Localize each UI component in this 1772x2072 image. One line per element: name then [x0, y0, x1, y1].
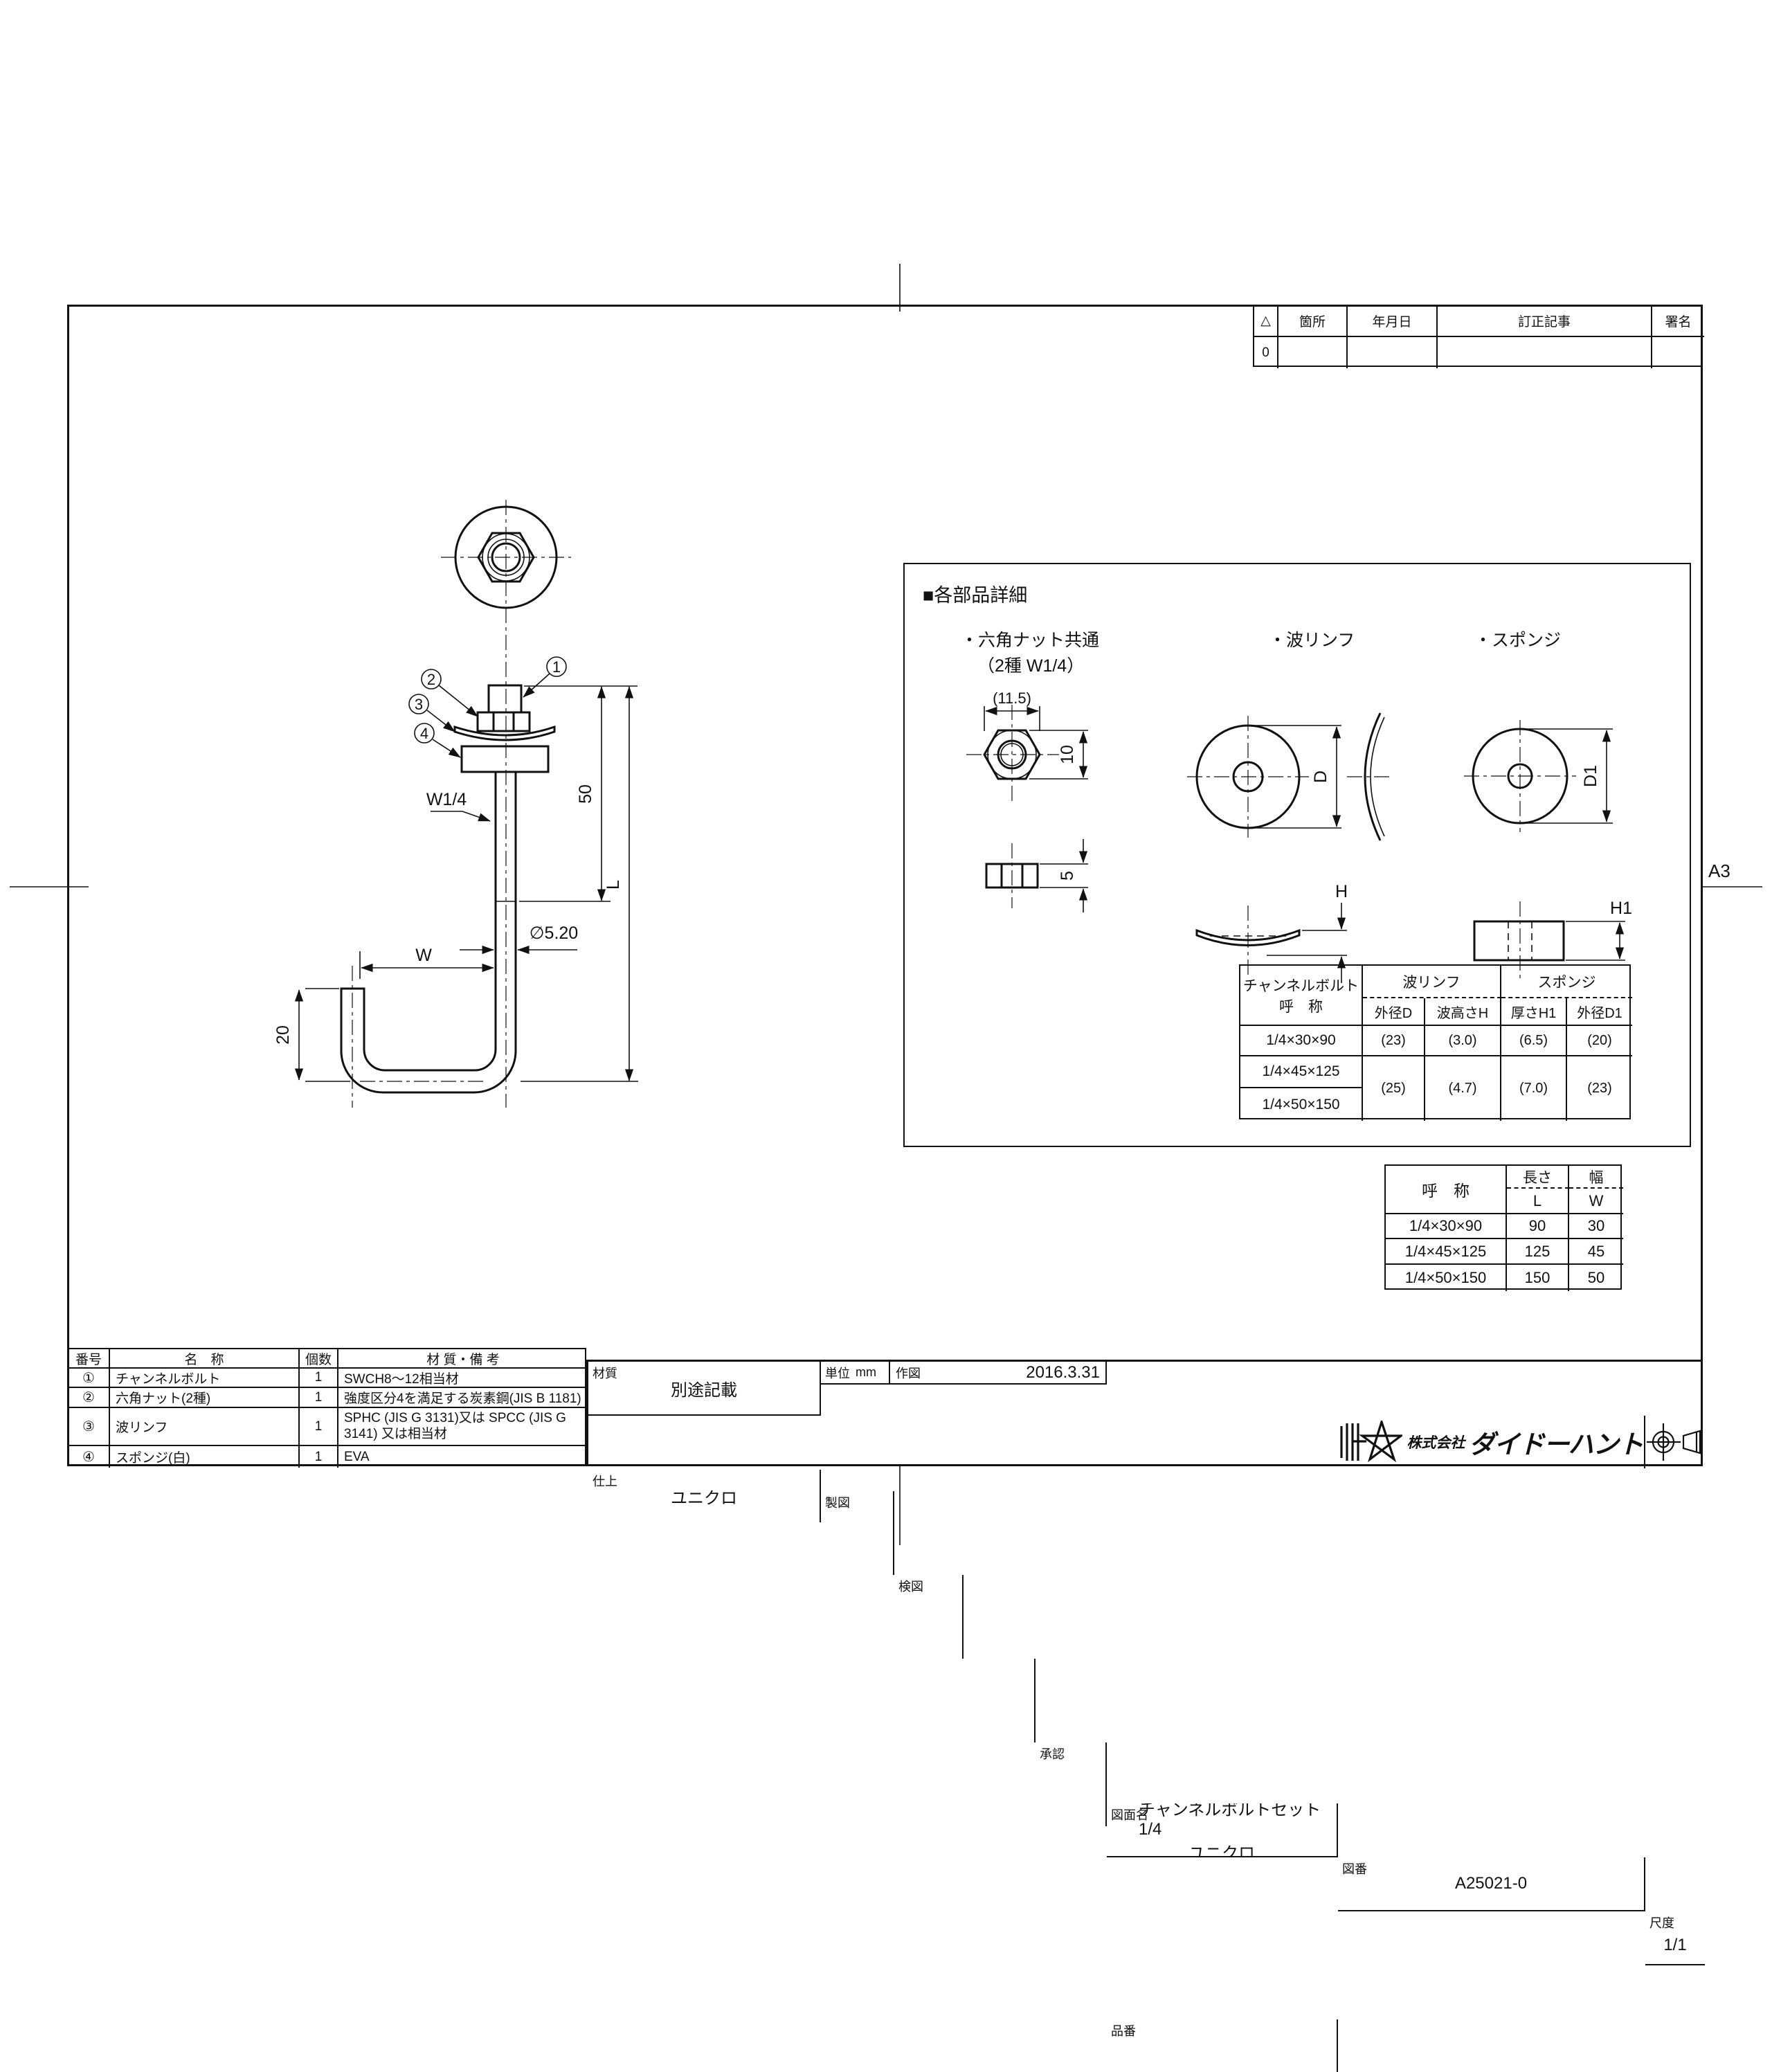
titleblock-unit-cell: 単位 mm [821, 1362, 890, 1385]
drawing-name-label: 図面名 [1111, 1805, 1148, 1823]
revision-row-sign [1652, 337, 1704, 368]
detail-panel-title: ■各部品詳細 [923, 580, 1027, 607]
revision-col-mark: △ [1254, 306, 1278, 337]
size-row3-l: 150 [1507, 1265, 1569, 1291]
spec-row3-name: 1/4×50×150 [1240, 1088, 1363, 1121]
spec-row1-name: 1/4×30×90 [1240, 1026, 1363, 1056]
parts-row3-name: 波リンフ [110, 1408, 300, 1446]
size-row1-name: 1/4×30×90 [1386, 1214, 1507, 1239]
parts-header-material: 材 質・備 考 [338, 1349, 588, 1369]
titleblock-scale-cell: 尺度 1/1 [1645, 1911, 1705, 1965]
spec-name-header-line1: チャンネルボルト [1243, 975, 1359, 996]
size-row3-w: 50 [1569, 1265, 1623, 1291]
drawing-name-line1: チャンネルボルトセット 1/4 [1139, 1803, 1337, 1839]
material-value: 別途記載 [671, 1376, 737, 1400]
spec-group-washer: 波リンフ [1363, 966, 1501, 998]
drawn-label: 作図 [896, 1364, 921, 1382]
parts-row4-material: EVA [338, 1446, 588, 1468]
size-table: 呼 称 長さ 幅 L W 1/4×30×90 90 30 1/4×45×125 … [1384, 1164, 1622, 1290]
parts-header-qty: 個数 [300, 1349, 338, 1369]
size-row2-name: 1/4×45×125 [1386, 1239, 1507, 1265]
revision-table: △ 箇所 年月日 訂正記事 署名 0 [1253, 305, 1703, 367]
parts-row1-name: チャンネルボルト [110, 1369, 300, 1388]
titleblock-number-cell: 図番 A25021-0 [1338, 1857, 1645, 1911]
spec-merged-h1: (7.0) [1501, 1056, 1567, 1121]
size-row3-name: 1/4×50×150 [1386, 1265, 1507, 1291]
spec-sub-h1: 厚さH1 [1501, 998, 1567, 1026]
parts-row1-material: SWCH8～12相当材 [338, 1369, 588, 1388]
titleblock-draft-cell: 製図 [821, 1491, 894, 1575]
revision-row-date [1348, 337, 1438, 368]
size-row1-w: 30 [1569, 1214, 1623, 1239]
spec-merged-d1: (23) [1567, 1056, 1632, 1121]
titleblock-check-cell: 検図 [894, 1575, 964, 1659]
parts-row2-no: ② [69, 1388, 110, 1408]
parts-row3-no: ③ [69, 1408, 110, 1446]
size-len-header: 長さ [1507, 1166, 1569, 1189]
revision-row-note [1438, 337, 1652, 368]
detail-nut-label: ・六角ナット共通 [961, 627, 1099, 651]
approve-label: 承認 [1040, 1745, 1065, 1763]
size-len-sub: L [1507, 1189, 1569, 1214]
drawn-date: 2016.3.31 [1026, 1363, 1100, 1382]
titleblock-approve-cell: 承認 [1036, 1742, 1107, 1826]
titleblock-material-cell: 材質 別途記載 [588, 1362, 821, 1416]
finish-label: 仕上 [593, 1472, 617, 1490]
size-name-header: 呼 称 [1386, 1166, 1507, 1214]
company-logo-mark [1339, 1421, 1402, 1463]
parts-row4-no: ④ [69, 1446, 110, 1468]
spec-name-header-line2: 呼 称 [1279, 996, 1323, 1016]
detail-nut-sublabel: （2種 W1/4） [977, 652, 1084, 677]
drawing-name-line2: ユニクロ [1188, 1839, 1255, 1857]
revision-col-sign: 署名 [1652, 306, 1704, 337]
titleblock-drawn-cell: 作図 2016.3.31 [890, 1362, 1107, 1385]
revision-col-place: 箇所 [1278, 306, 1348, 337]
revision-col-note: 訂正記事 [1438, 306, 1652, 337]
unit-value: mm [856, 1365, 876, 1380]
parts-row3-qty: 1 [300, 1408, 338, 1446]
parts-table: 番号 名 称 個数 材 質・備 考 ① チャンネルボルト 1 SWCH8～12相… [67, 1348, 586, 1466]
parts-row2-qty: 1 [300, 1388, 338, 1408]
material-label: 材質 [593, 1364, 617, 1382]
scale-label: 尺度 [1649, 1913, 1674, 1931]
company-name: ダイドーハント [1469, 1423, 1643, 1461]
spec-sub-d1: 外径D1 [1567, 998, 1632, 1026]
revision-row-mark: 0 [1254, 337, 1278, 368]
drawing-number-label: 図番 [1342, 1859, 1367, 1877]
drawing-number-value: A25021-0 [1455, 1874, 1527, 1893]
spec-row1-d1: (20) [1567, 1026, 1632, 1056]
size-row1-l: 90 [1507, 1214, 1569, 1239]
parts-row3-material: SPHC (JIS G 3131)又は SPCC (JIS G 3141) 又は… [338, 1408, 588, 1446]
size-row2-w: 45 [1569, 1239, 1623, 1265]
unit-label: 単位 [825, 1364, 850, 1382]
parts-row1-no: ① [69, 1369, 110, 1388]
titleblock-finish-cell: 仕上 ユニクロ [588, 1470, 821, 1522]
draft-label: 製図 [825, 1493, 850, 1511]
size-wid-header: 幅 [1569, 1166, 1623, 1189]
titleblock-blank-cell [964, 1659, 1036, 1742]
titleblock-item-cell: 品番 [1107, 2019, 1338, 2072]
titleblock-projection-cell [1645, 1416, 1705, 1468]
sheet-size-label: A3 [1708, 861, 1730, 882]
parts-header-name: 名 称 [110, 1349, 300, 1369]
third-angle-projection-icon [1646, 1418, 1704, 1466]
scale-value: 1/1 [1663, 1936, 1686, 1955]
parts-row4-name: スポンジ(白) [110, 1446, 300, 1468]
detail-spec-table: チャンネルボルト 呼 称 波リンフ スポンジ 外径D 波高さH 厚さH1 外径D… [1239, 964, 1631, 1119]
parts-row4-qty: 1 [300, 1446, 338, 1468]
finish-value: ユニクロ [671, 1484, 737, 1508]
spec-row1-h1: (6.5) [1501, 1026, 1567, 1056]
spec-group-sponge: スポンジ [1501, 966, 1632, 998]
title-block: 材質 別途記載 仕上 ユニクロ 単位 mm 作図 2016.3.31 製図 検図… [586, 1360, 1703, 1466]
parts-row2-name: 六角ナット(2種) [110, 1388, 300, 1408]
spec-sub-h: 波高さH [1425, 998, 1501, 1026]
detail-washer-label: ・波リンフ [1269, 627, 1355, 651]
titleblock-logo-cell: 株式会社 ダイドーハント [1338, 1416, 1645, 1468]
revision-row-place [1278, 337, 1348, 368]
spec-name-header: チャンネルボルト 呼 称 [1240, 966, 1363, 1026]
item-number-label: 品番 [1111, 2021, 1136, 2039]
spec-row2-name: 1/4×45×125 [1240, 1056, 1363, 1088]
parts-row2-material: 強度区分4を満足する炭素鋼(JIS B 1181) [338, 1388, 588, 1408]
detail-sponge-label: ・スポンジ [1474, 627, 1561, 651]
revision-col-date: 年月日 [1348, 306, 1438, 337]
spec-merged-h: (4.7) [1425, 1056, 1501, 1121]
size-wid-sub: W [1569, 1189, 1623, 1214]
spec-sub-d: 外径D [1363, 998, 1425, 1026]
parts-row1-qty: 1 [300, 1369, 338, 1388]
company-prefix: 株式会社 [1407, 1432, 1465, 1452]
check-label: 検図 [898, 1577, 923, 1595]
parts-header-no: 番号 [69, 1349, 110, 1369]
size-row2-l: 125 [1507, 1239, 1569, 1265]
spec-merged-d: (25) [1363, 1056, 1425, 1121]
spec-row1-d: (23) [1363, 1026, 1425, 1056]
titleblock-name-cell: 図面名 チャンネルボルトセット 1/4 ユニクロ [1107, 1803, 1338, 1857]
spec-row1-h: (3.0) [1425, 1026, 1501, 1056]
engineering-drawing-page: { "frame": { "size_label": "A3" }, "revi… [0, 0, 1772, 1772]
